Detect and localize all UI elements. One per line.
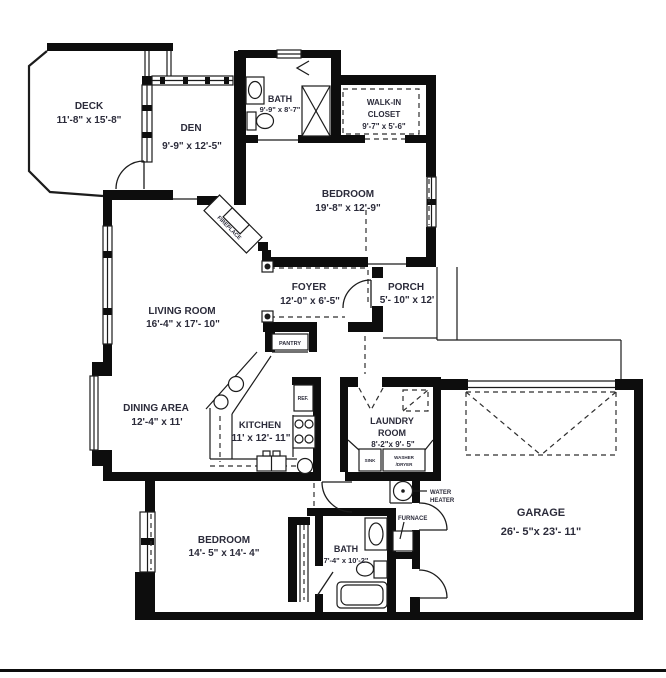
bedroom-upper-label: BEDROOM — [322, 189, 374, 200]
sink-bowl-icon — [214, 395, 228, 409]
toilet-icon — [257, 114, 274, 129]
column-dot — [265, 314, 271, 320]
page-rule — [0, 669, 666, 672]
deck-dims: 11'-8" x 15'-8" — [57, 115, 122, 126]
bath-lower-door — [317, 572, 333, 596]
water-heater-label-2: HEATER — [430, 498, 455, 504]
laundry-shelf-dash — [403, 390, 428, 411]
pantry-label: PANTRY — [279, 341, 301, 347]
laundry-label-2: ROOM — [378, 428, 406, 438]
laundry-bifold-door — [371, 388, 383, 410]
garage-rear-door — [419, 570, 447, 598]
garage-dims: 26'- 5"x 23'- 11" — [501, 526, 582, 538]
bedroom-lower-dims: 14'- 5" x 14'- 4" — [189, 548, 260, 559]
window-mullion — [143, 132, 152, 138]
burner-icon — [295, 420, 303, 428]
washer-label-1: WASHER — [394, 455, 415, 460]
water-heater-label-1: WATER — [430, 490, 452, 496]
room-labels: DECK 11'-8" x 15'-8" DEN 9'-9" x 12'-5" … — [57, 94, 582, 565]
dining-area-label: DINING AREA — [123, 403, 189, 414]
den-dims: 9'-9" x 12'-5" — [162, 141, 222, 152]
furnace-label: FURNACE — [398, 516, 427, 522]
porch-dims: 5'- 10" x 12' — [380, 295, 435, 306]
window-mullion — [143, 105, 152, 111]
walkin-closet-label-1: WALK-IN — [367, 98, 401, 107]
porch-label: PORCH — [388, 282, 424, 293]
bath-upper-dims: 9'-9" x 8'-7" — [260, 105, 301, 114]
window-mullion — [183, 77, 188, 84]
garage-ceiling-dash — [466, 392, 541, 455]
window-mullion — [160, 77, 165, 84]
window-mullion — [427, 199, 436, 205]
foyer-dims: 12'-0" x 6'-5" — [280, 296, 340, 307]
window-mullion — [104, 251, 112, 258]
burner-icon — [305, 435, 313, 443]
window-mullion — [224, 77, 229, 84]
washer-dryer-cabinet — [383, 449, 425, 471]
burner-icon — [305, 420, 313, 428]
bath-lower-label: BATH — [334, 544, 358, 554]
garage-label: GARAGE — [517, 507, 565, 519]
deck-label: DECK — [75, 101, 104, 112]
bedroom-upper-dims: 19'-8" x 12'-9" — [315, 203, 381, 214]
shower-door — [297, 61, 309, 75]
furnace-icon — [393, 531, 413, 551]
dining-area-dims: 12'-4" x 11' — [131, 417, 182, 428]
faucet-icon — [273, 451, 280, 456]
fireplace: FIREPLACE — [204, 195, 262, 253]
front-door — [343, 280, 371, 308]
living-room-dims: 16'-4" x 17'- 10" — [146, 319, 220, 330]
sink-bowl-icon — [229, 377, 244, 392]
deck-door — [116, 161, 144, 189]
laundry-label-1: LAUNDRY — [370, 416, 414, 426]
toilet-tank — [247, 112, 256, 130]
laundry-dims: 8'-2"x 9'- 5" — [371, 440, 415, 449]
bedroom-lower-label: BEDROOM — [198, 535, 250, 546]
burner-icon — [295, 435, 303, 443]
sink-icon — [369, 523, 383, 545]
floor-plan-image: FIREPLACE DECK — [0, 0, 666, 678]
kitchen-label: KITCHEN — [239, 420, 281, 431]
den-label: DEN — [180, 123, 201, 134]
window-mullion — [205, 77, 210, 84]
corner-sink-icon — [298, 459, 313, 474]
water-heater-dot — [401, 489, 405, 493]
column-dot — [265, 264, 271, 270]
bath-lower-dims: 7'-4" x 10'-2" — [324, 556, 369, 565]
hall-door — [322, 482, 352, 512]
walkin-closet-dims: 9'-7" x 5'-6" — [362, 122, 406, 131]
walkin-closet-label-2: CLOSET — [368, 110, 401, 119]
refrigerator-label: REF. — [298, 396, 309, 402]
washer-label-2: /DRYER — [396, 462, 414, 467]
window-mullion — [141, 538, 154, 545]
bathtub-inner — [341, 585, 383, 605]
floor-plan-page: FIREPLACE DECK — [0, 0, 666, 678]
living-room-label: LIVING ROOM — [148, 306, 215, 317]
toilet-tank — [374, 561, 387, 578]
foyer-label: FOYER — [292, 282, 327, 293]
sink-label: SINK — [365, 458, 377, 463]
cabinet-angle — [348, 440, 359, 450]
laundry-bifold-door — [359, 388, 371, 410]
window-mullion — [104, 308, 112, 315]
kitchen-dims: 11' x 12'- 11" — [232, 433, 291, 444]
cabinet-angle — [425, 440, 433, 450]
faucet-icon — [263, 451, 270, 456]
garage-ceiling-dash — [541, 392, 616, 455]
sink-icon — [249, 82, 262, 99]
bath-upper-label: BATH — [268, 94, 292, 104]
